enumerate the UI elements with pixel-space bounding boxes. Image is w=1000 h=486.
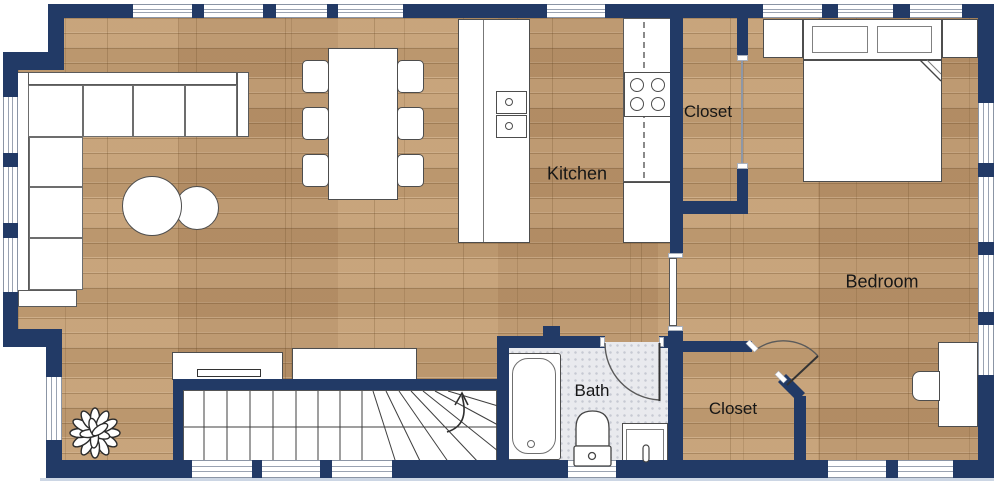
burner xyxy=(651,78,665,92)
sofa-cushion xyxy=(83,85,133,137)
wall-stairs-top xyxy=(173,379,509,390)
dining-chair xyxy=(397,60,424,93)
sink-drain xyxy=(505,122,513,130)
wall-closet-top-stub-lower xyxy=(737,169,748,214)
window xyxy=(978,255,994,312)
coffee-table-large xyxy=(122,176,182,236)
nightstand-right xyxy=(942,19,978,58)
sliding-door xyxy=(669,258,677,326)
tub-drain xyxy=(527,440,535,448)
pillow xyxy=(877,26,932,53)
sofa-arm-bottom xyxy=(18,290,77,307)
window xyxy=(3,97,18,153)
burner xyxy=(651,97,665,111)
exterior-patch-bottom-left xyxy=(0,347,46,486)
closet-open-doorway xyxy=(741,61,743,163)
window xyxy=(262,460,320,478)
sink-drain xyxy=(505,98,513,106)
window xyxy=(978,325,994,375)
sofa-back-top xyxy=(18,72,237,85)
door-jamb xyxy=(668,326,683,331)
dining-chair xyxy=(302,107,329,140)
dining-table xyxy=(328,48,398,200)
wall-closet-top-stub-upper xyxy=(737,17,748,56)
sofa-cushion xyxy=(29,187,83,238)
desk-chair xyxy=(912,371,940,401)
sideboard xyxy=(292,348,417,380)
floor-plan: Kitchen Closet Bedroom Bath Closet xyxy=(0,0,1000,486)
window xyxy=(898,460,953,478)
sofa-cushion xyxy=(133,85,185,137)
window xyxy=(828,460,886,478)
wall-stairs-left xyxy=(173,388,183,462)
dining-chair xyxy=(397,154,424,187)
window xyxy=(763,4,822,18)
stove-cooktop xyxy=(624,72,671,117)
wall-closet-bottom-right xyxy=(794,396,806,462)
burner xyxy=(630,78,644,92)
wall-kitchen-divider xyxy=(670,17,683,254)
room-label-bath: Bath xyxy=(575,381,610,401)
wall-bath-left xyxy=(497,342,509,462)
sofa-arm-right xyxy=(237,72,249,137)
exterior-baseline xyxy=(40,478,994,481)
nightstand-left xyxy=(763,19,803,58)
room-label-closet-top: Closet xyxy=(684,102,732,122)
island-divider-line xyxy=(483,20,484,242)
window xyxy=(3,238,18,292)
window xyxy=(910,4,962,18)
window xyxy=(978,177,994,242)
window xyxy=(838,4,893,18)
window xyxy=(133,4,192,18)
room-label-closet-bottom: Closet xyxy=(709,399,757,419)
wall-closet-bottom-top xyxy=(678,341,752,352)
tv xyxy=(197,369,261,377)
sofa-cushion xyxy=(28,85,83,137)
bed xyxy=(803,60,942,182)
wall-nub xyxy=(543,326,560,340)
dining-chair xyxy=(397,107,424,140)
window xyxy=(192,460,252,478)
window xyxy=(3,167,18,223)
exterior-patch-top-left xyxy=(0,0,48,52)
door-jamb xyxy=(659,337,664,347)
window xyxy=(547,4,605,18)
dining-chair xyxy=(302,154,329,187)
room-label-kitchen: Kitchen xyxy=(547,164,607,185)
bathtub-inner xyxy=(512,358,556,454)
door-jamb xyxy=(737,163,748,169)
sofa-cushion xyxy=(29,137,83,187)
window xyxy=(276,4,327,18)
window xyxy=(332,460,392,478)
sofa-cushion xyxy=(185,85,237,137)
staircase xyxy=(183,390,497,462)
window xyxy=(204,4,263,18)
desk xyxy=(938,342,978,427)
window xyxy=(978,103,994,163)
window xyxy=(46,377,62,440)
window xyxy=(338,4,403,18)
sofa-cushion xyxy=(29,238,83,290)
vanity-basin xyxy=(626,429,664,463)
window xyxy=(568,460,616,478)
room-label-bedroom: Bedroom xyxy=(845,272,918,293)
pillow xyxy=(812,26,868,53)
door-jamb xyxy=(600,337,605,347)
staircase-treads xyxy=(184,391,498,463)
refrigerator xyxy=(623,182,672,243)
burner xyxy=(630,97,644,111)
dining-chair xyxy=(302,60,329,93)
